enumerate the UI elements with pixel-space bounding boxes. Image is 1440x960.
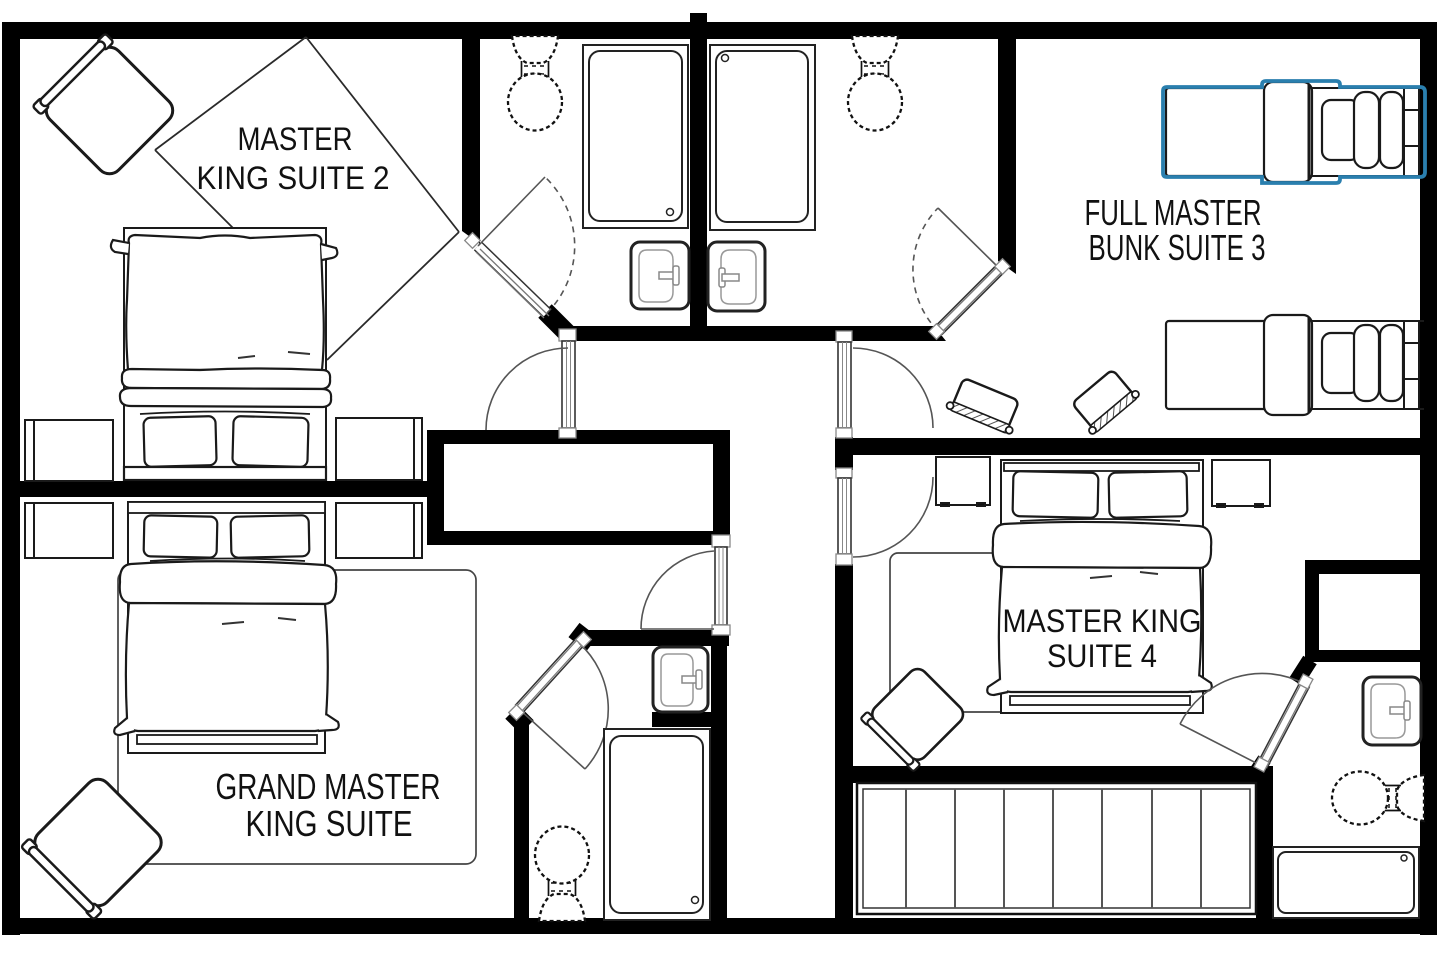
svg-text:KING SUITE 2: KING SUITE 2 (197, 160, 390, 196)
svg-text:GRAND MASTER: GRAND MASTER (216, 766, 441, 807)
svg-text:MASTER: MASTER (238, 121, 353, 157)
svg-text:MASTER KING: MASTER KING (1003, 603, 1202, 639)
svg-text:SUITE 4: SUITE 4 (1047, 638, 1157, 674)
svg-text:KING SUITE: KING SUITE (246, 803, 413, 844)
svg-text:BUNK SUITE 3: BUNK SUITE 3 (1089, 227, 1266, 268)
